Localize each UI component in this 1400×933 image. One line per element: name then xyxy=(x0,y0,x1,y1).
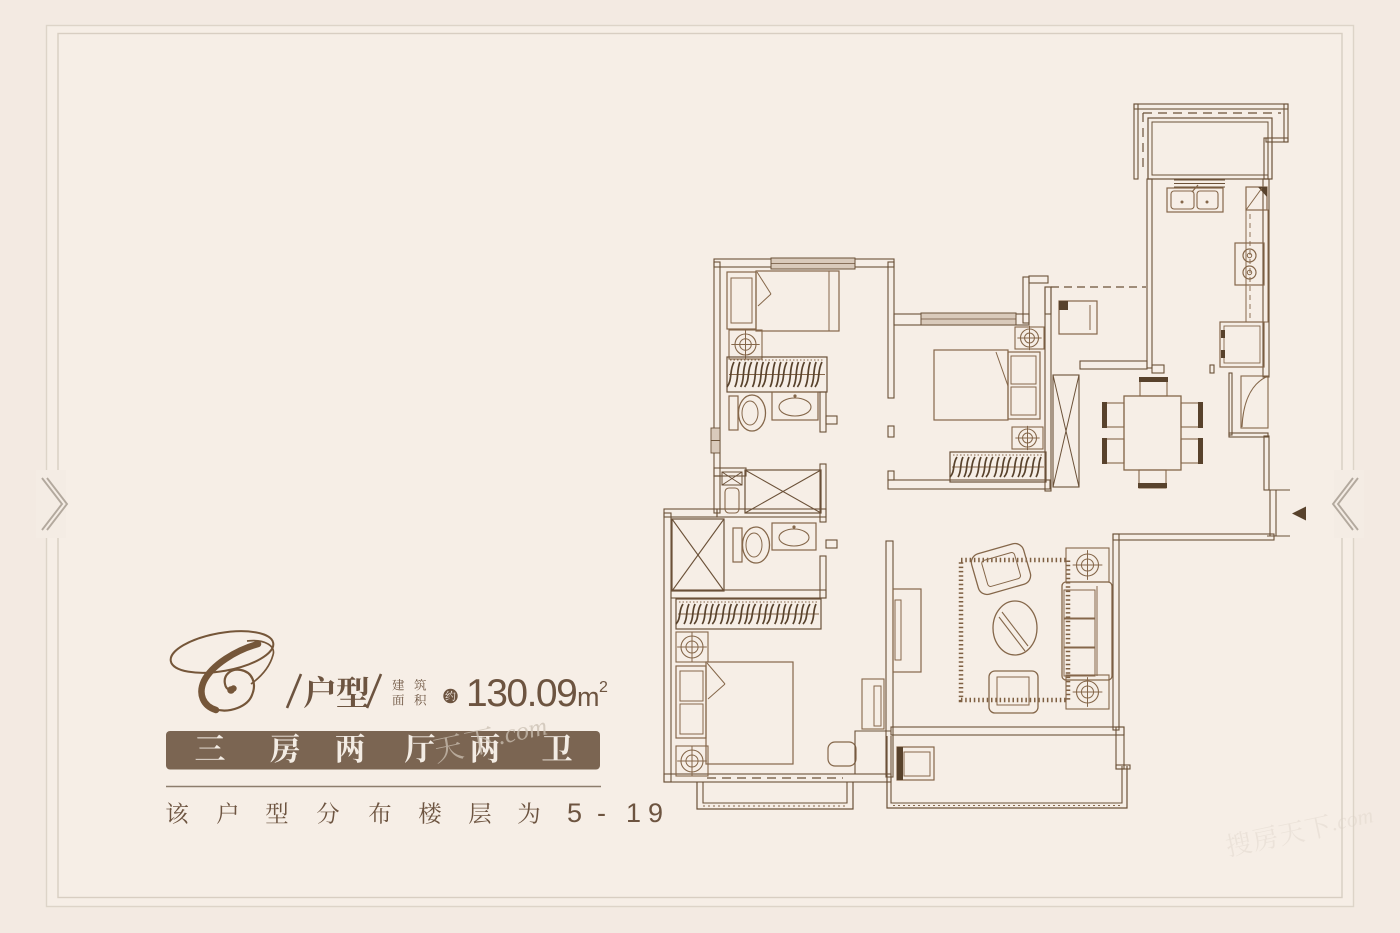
svg-text:1: 1 xyxy=(626,798,641,828)
svg-text:5: 5 xyxy=(567,798,582,828)
svg-text:m: m xyxy=(577,682,600,712)
svg-text:-: - xyxy=(597,798,606,828)
svg-text:2: 2 xyxy=(599,679,608,696)
svg-text:9: 9 xyxy=(648,798,663,828)
svg-text:130.09: 130.09 xyxy=(466,672,576,715)
